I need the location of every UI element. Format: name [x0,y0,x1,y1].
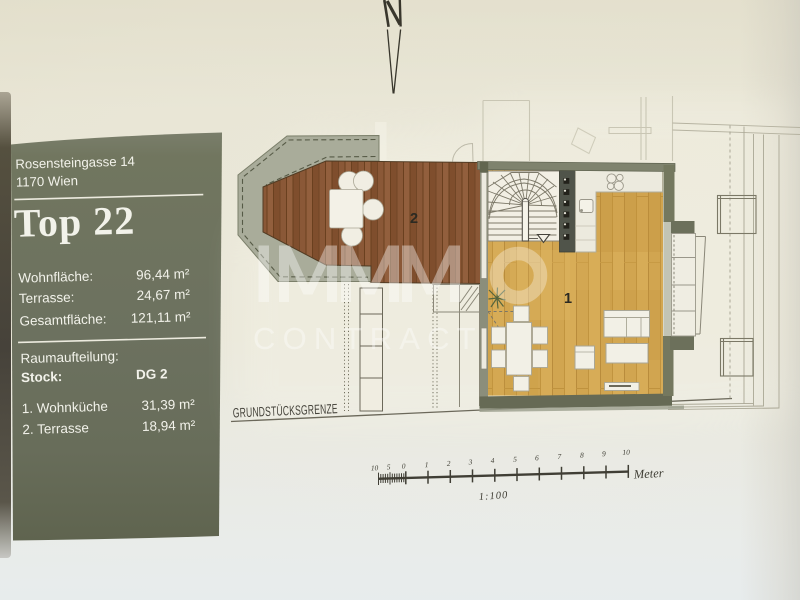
svg-text:1:100: 1:100 [478,490,508,503]
svg-text:1: 1 [564,291,572,307]
svg-text:6: 6 [535,453,539,462]
svg-text:1: 1 [425,460,429,469]
svg-text:10: 10 [622,448,630,457]
svg-text:CONTRACT: CONTRACT [253,321,483,356]
svg-text:10: 10 [371,463,379,472]
svg-text:3: 3 [468,457,473,466]
svg-text:4: 4 [491,456,495,465]
svg-text:5: 5 [513,455,517,464]
svg-text:8: 8 [580,450,584,459]
svg-text:Meter: Meter [632,466,664,482]
svg-text:2: 2 [447,459,451,468]
svg-text:5: 5 [387,462,391,471]
svg-text:9: 9 [602,449,606,458]
svg-text:2: 2 [410,211,418,227]
svg-text:0: 0 [402,461,406,470]
svg-text:7: 7 [557,452,561,461]
